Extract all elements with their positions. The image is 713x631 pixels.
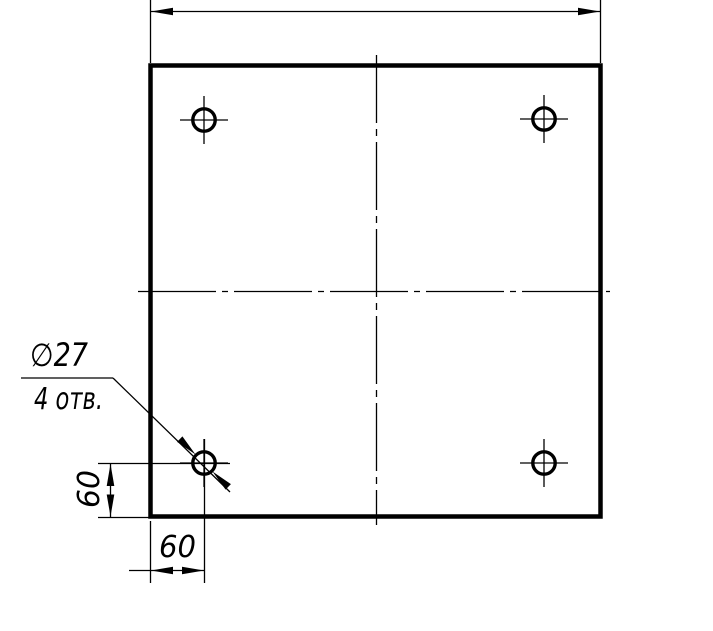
vdim-arrow-up [107,464,115,486]
hdim-arrow-left [151,567,173,575]
drawing-canvas: ∅274 отв.6060 [0,0,713,631]
hdim-arrow-right [182,567,204,575]
technical-drawing: ∅274 отв.6060 [0,0,713,631]
top-dim-arrow-right [578,8,600,16]
vdim-arrow-down [107,495,115,517]
leader-arrow-upper [177,436,195,454]
top-dim-arrow-left [151,8,173,16]
vertical-dim-label: 60 [72,470,107,508]
leader-diagonal [113,378,230,492]
hole-diameter-label: ∅27 [30,336,89,374]
leader-arrow-lower [213,472,231,490]
hole-count-label: 4 отв. [34,382,103,417]
horizontal-dim-label: 60 [159,530,196,565]
